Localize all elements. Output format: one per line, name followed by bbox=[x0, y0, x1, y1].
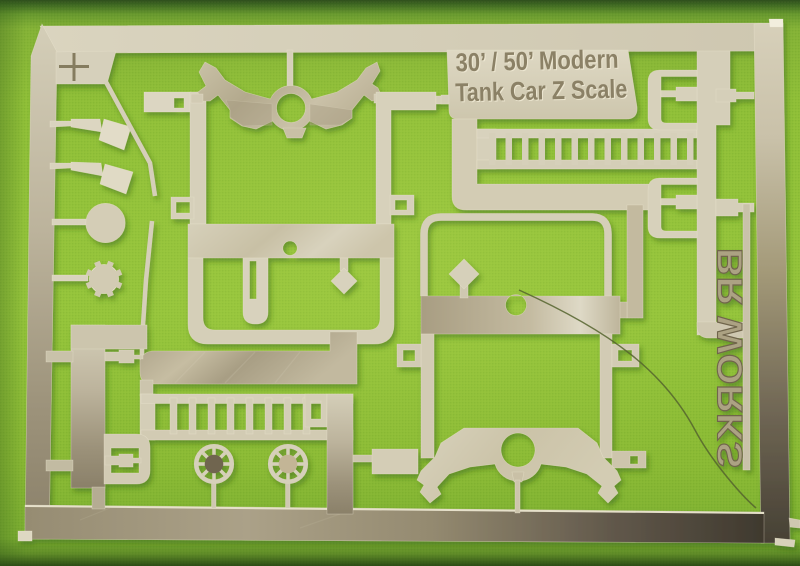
svg-text:Tank Car Z Scale: Tank Car Z Scale bbox=[455, 74, 628, 108]
svg-text:BR WORKS: BR WORKS bbox=[711, 248, 750, 468]
svg-text:30’ / 50’ Modern: 30’ / 50’ Modern bbox=[455, 44, 619, 78]
